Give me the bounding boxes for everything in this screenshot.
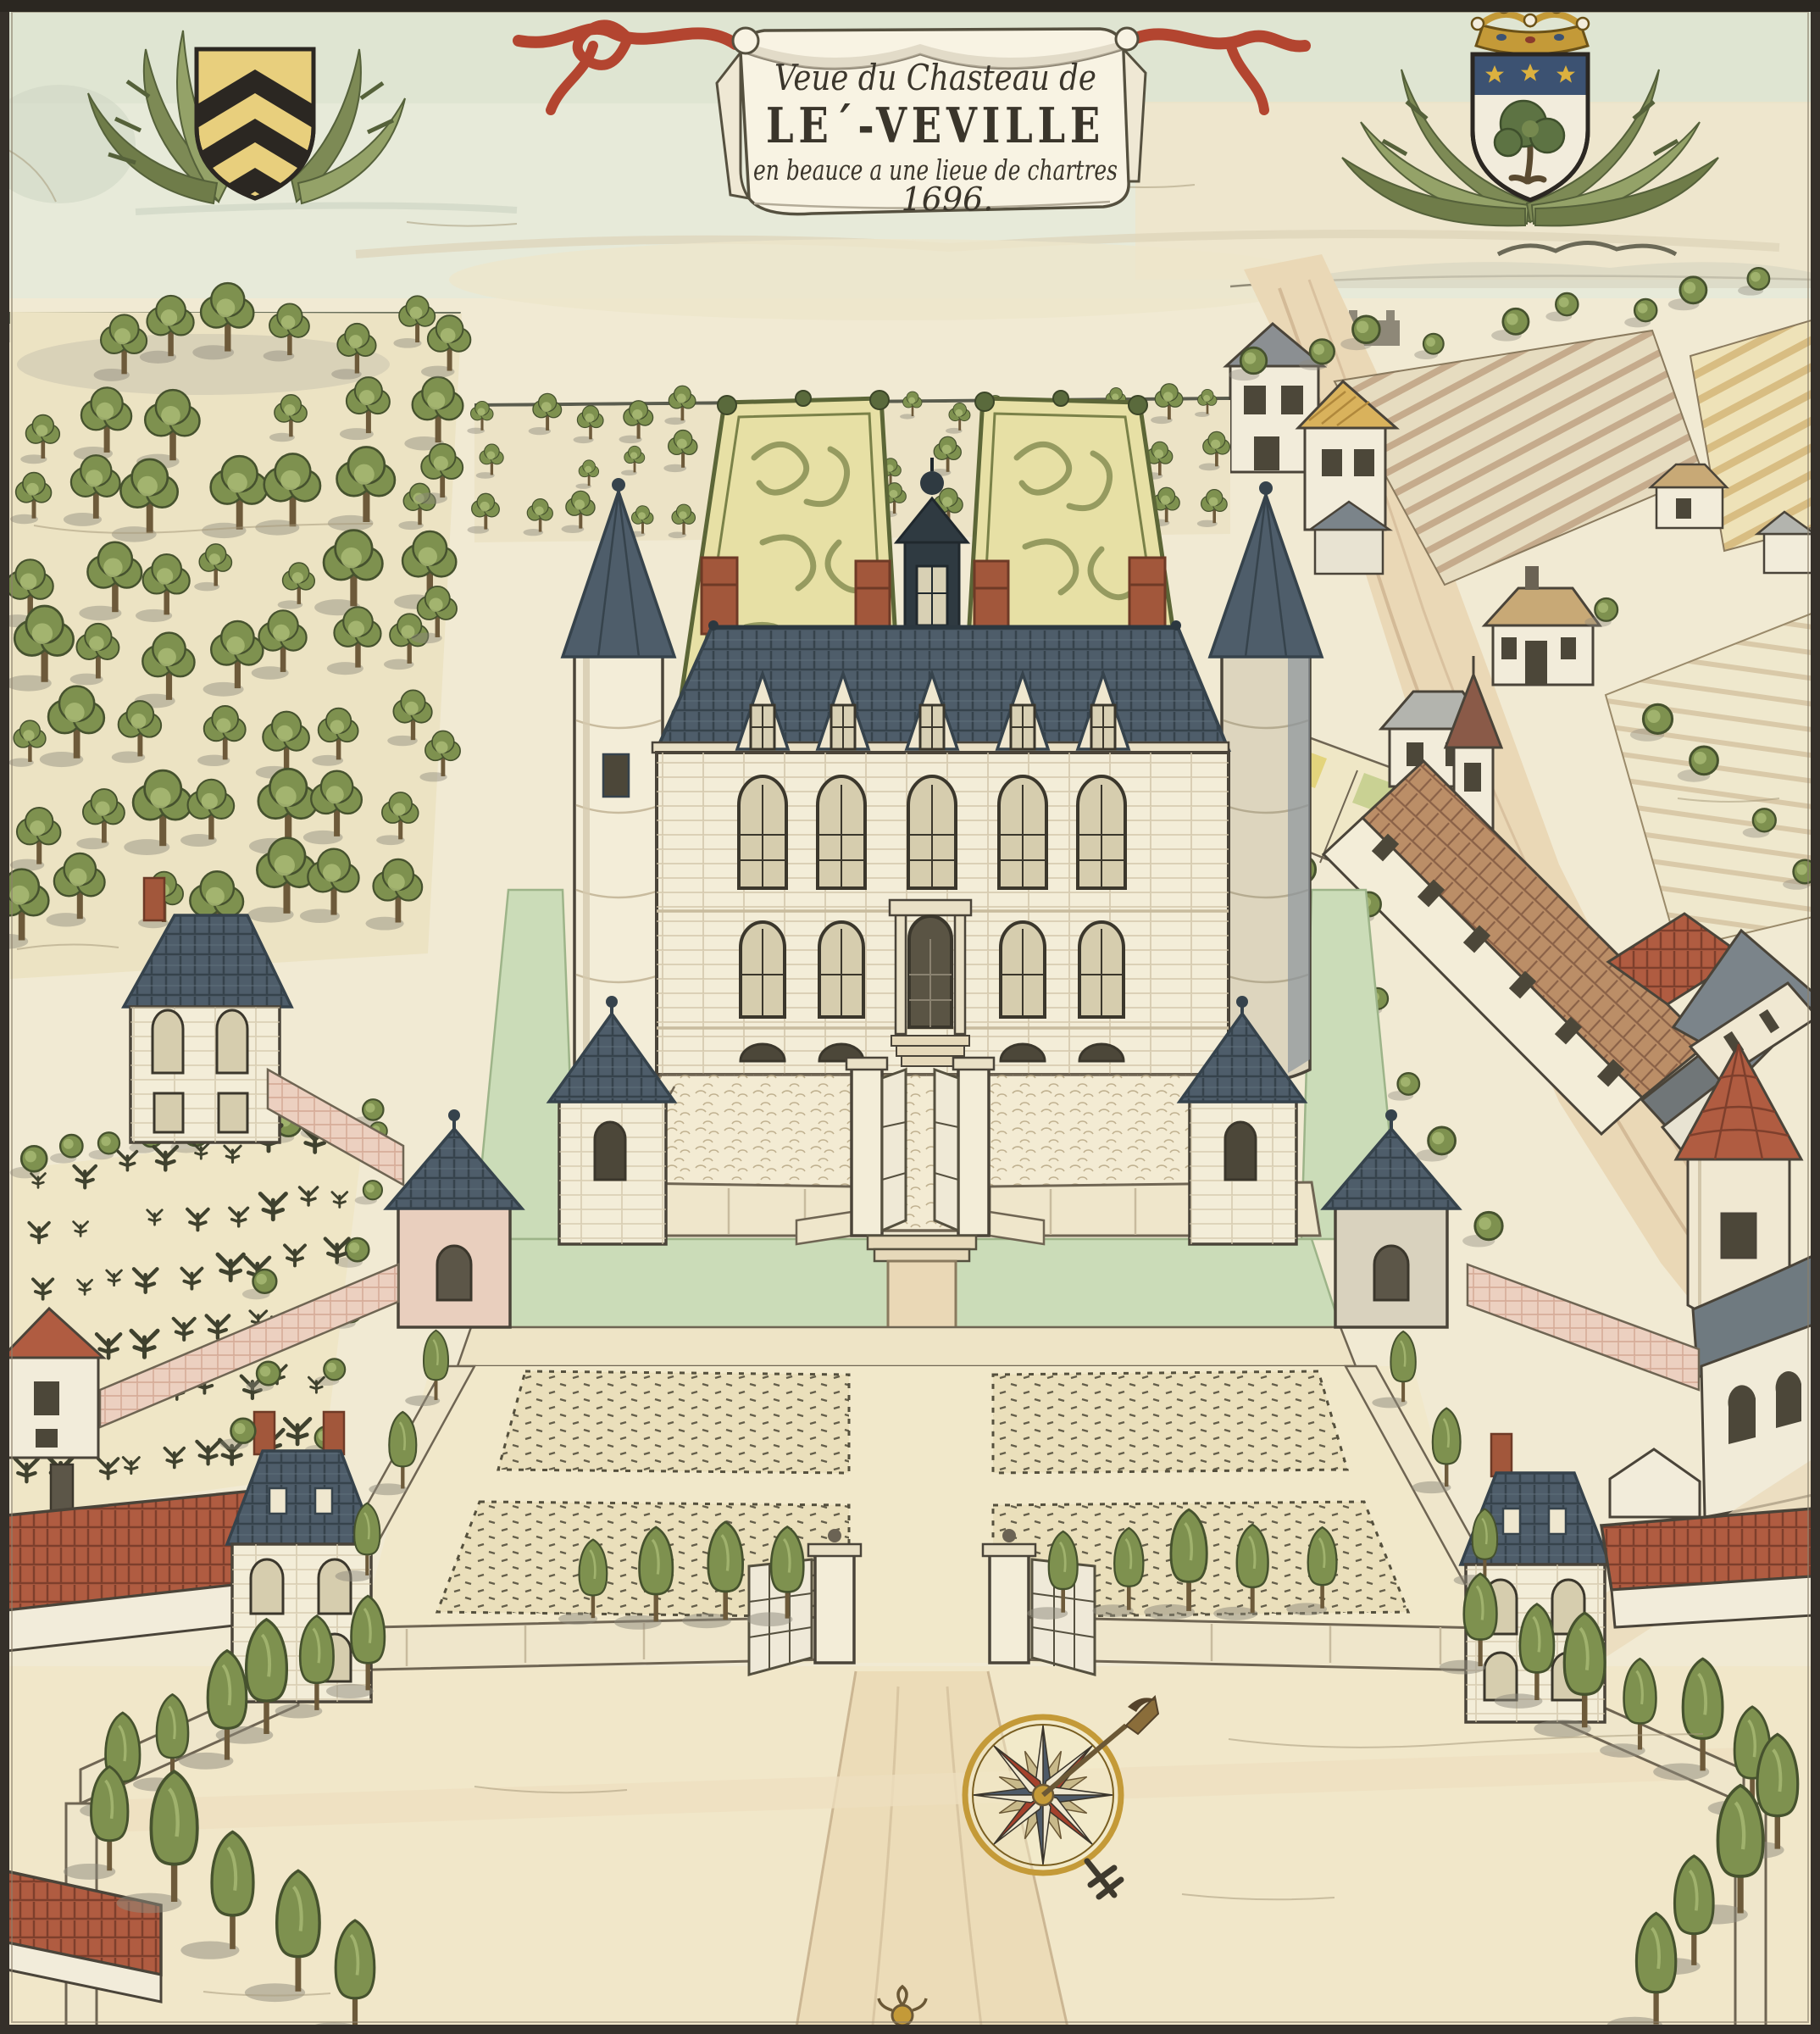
banner-knot — [1116, 28, 1138, 50]
moat-bridge — [888, 1261, 956, 1329]
facade — [657, 753, 1229, 1075]
garden-plot — [993, 1371, 1347, 1473]
entrance-door — [890, 900, 971, 1066]
moat-rim-walk — [458, 1327, 1356, 1366]
estate-birdseye-view: Veue du Chasteau de LE´-VEVILLE en beauc… — [0, 0, 1820, 2034]
gate-leaf — [882, 1070, 906, 1231]
gate-leaf — [935, 1070, 958, 1231]
banner-title-line1: Veue du Chasteau de — [774, 57, 1096, 98]
garden-plot — [498, 1371, 849, 1473]
banner-knot — [733, 28, 758, 53]
banner-title-line2: LE´-VEVILLE — [766, 97, 1105, 154]
banner-title-year: 1696. — [902, 181, 994, 218]
